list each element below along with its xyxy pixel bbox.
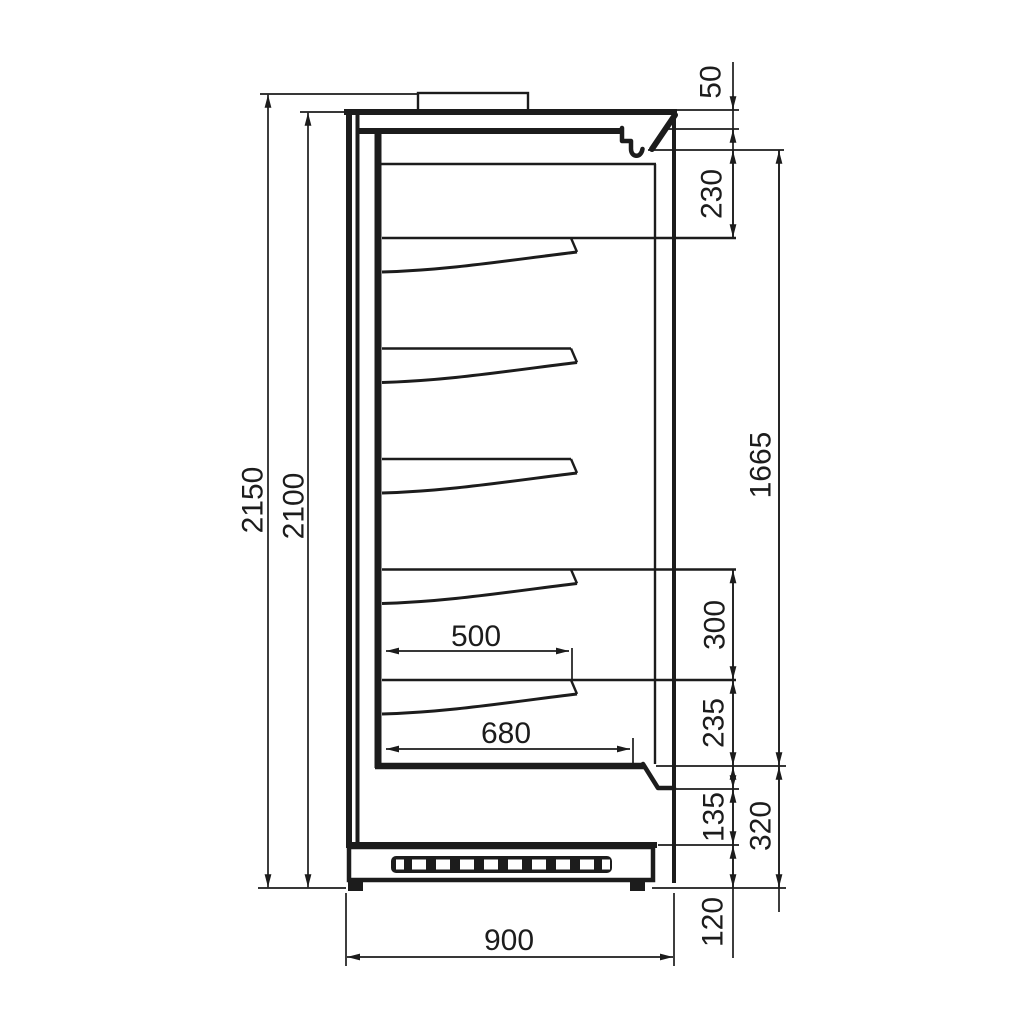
technical-drawing: 2150 2100 50 230 300 235 bbox=[0, 0, 1024, 1024]
drawing-page: 2150 2100 50 230 300 235 bbox=[0, 0, 1024, 1024]
dim-deck-depth: 680 bbox=[386, 717, 630, 750]
shelves bbox=[382, 238, 736, 714]
dim-label-display-opening-height: 1665 bbox=[745, 432, 778, 499]
dim-shelf-to-deck: 235 bbox=[698, 681, 734, 765]
base-grille bbox=[391, 856, 612, 873]
shelf-5 bbox=[382, 680, 736, 714]
dim-label-shelf-to-deck: 235 bbox=[698, 698, 731, 748]
dim-body-height: 2100 bbox=[278, 113, 311, 887]
dim-deck-to-floor: 320 bbox=[745, 767, 780, 887]
dim-label-shelf-depth: 500 bbox=[451, 620, 501, 653]
dim-label-deck-to-floor: 320 bbox=[745, 801, 778, 851]
dim-shelf-depth: 500 bbox=[386, 620, 569, 653]
dim-overall-depth: 900 bbox=[347, 924, 673, 957]
front-step-profile bbox=[643, 764, 674, 788]
dim-label-overall-height: 2150 bbox=[237, 467, 270, 534]
shelf-3 bbox=[382, 459, 577, 493]
foot-rear bbox=[348, 882, 363, 891]
dim-label-bottom-shelf-spacing: 300 bbox=[699, 600, 732, 650]
dim-label-body-height: 2100 bbox=[278, 473, 311, 540]
canopy-hook-profile bbox=[622, 128, 643, 156]
dim-canopy-to-first-shelf: 230 bbox=[696, 151, 734, 237]
canopy-diagonal bbox=[652, 115, 675, 149]
dim-overall-height: 2150 bbox=[237, 95, 270, 887]
dim-label-overall-depth: 900 bbox=[484, 924, 534, 957]
dim-label-front-step-height: 135 bbox=[698, 792, 731, 842]
dim-label-canopy-front-height: 50 bbox=[695, 65, 728, 98]
dim-canopy-front-height: 50 bbox=[695, 65, 734, 143]
shelf-2 bbox=[382, 349, 577, 383]
dim-label-canopy-to-first-shelf: 230 bbox=[696, 169, 729, 219]
dimensions: 2150 2100 50 230 300 235 bbox=[237, 62, 780, 958]
dim-label-deck-depth: 680 bbox=[481, 717, 531, 750]
cabinet-body bbox=[344, 93, 736, 891]
dim-display-opening-height: 1665 bbox=[745, 151, 780, 765]
dim-plinth-height: 120 bbox=[697, 846, 734, 947]
foot-front bbox=[630, 882, 645, 891]
dim-label-plinth-height: 120 bbox=[697, 897, 730, 947]
shelf-1 bbox=[382, 238, 736, 272]
top-vent-block bbox=[418, 93, 528, 111]
dim-bottom-shelf-spacing: 300 bbox=[699, 570, 734, 679]
shelf-4 bbox=[382, 570, 736, 604]
dim-front-step-height: 135 bbox=[698, 790, 734, 844]
